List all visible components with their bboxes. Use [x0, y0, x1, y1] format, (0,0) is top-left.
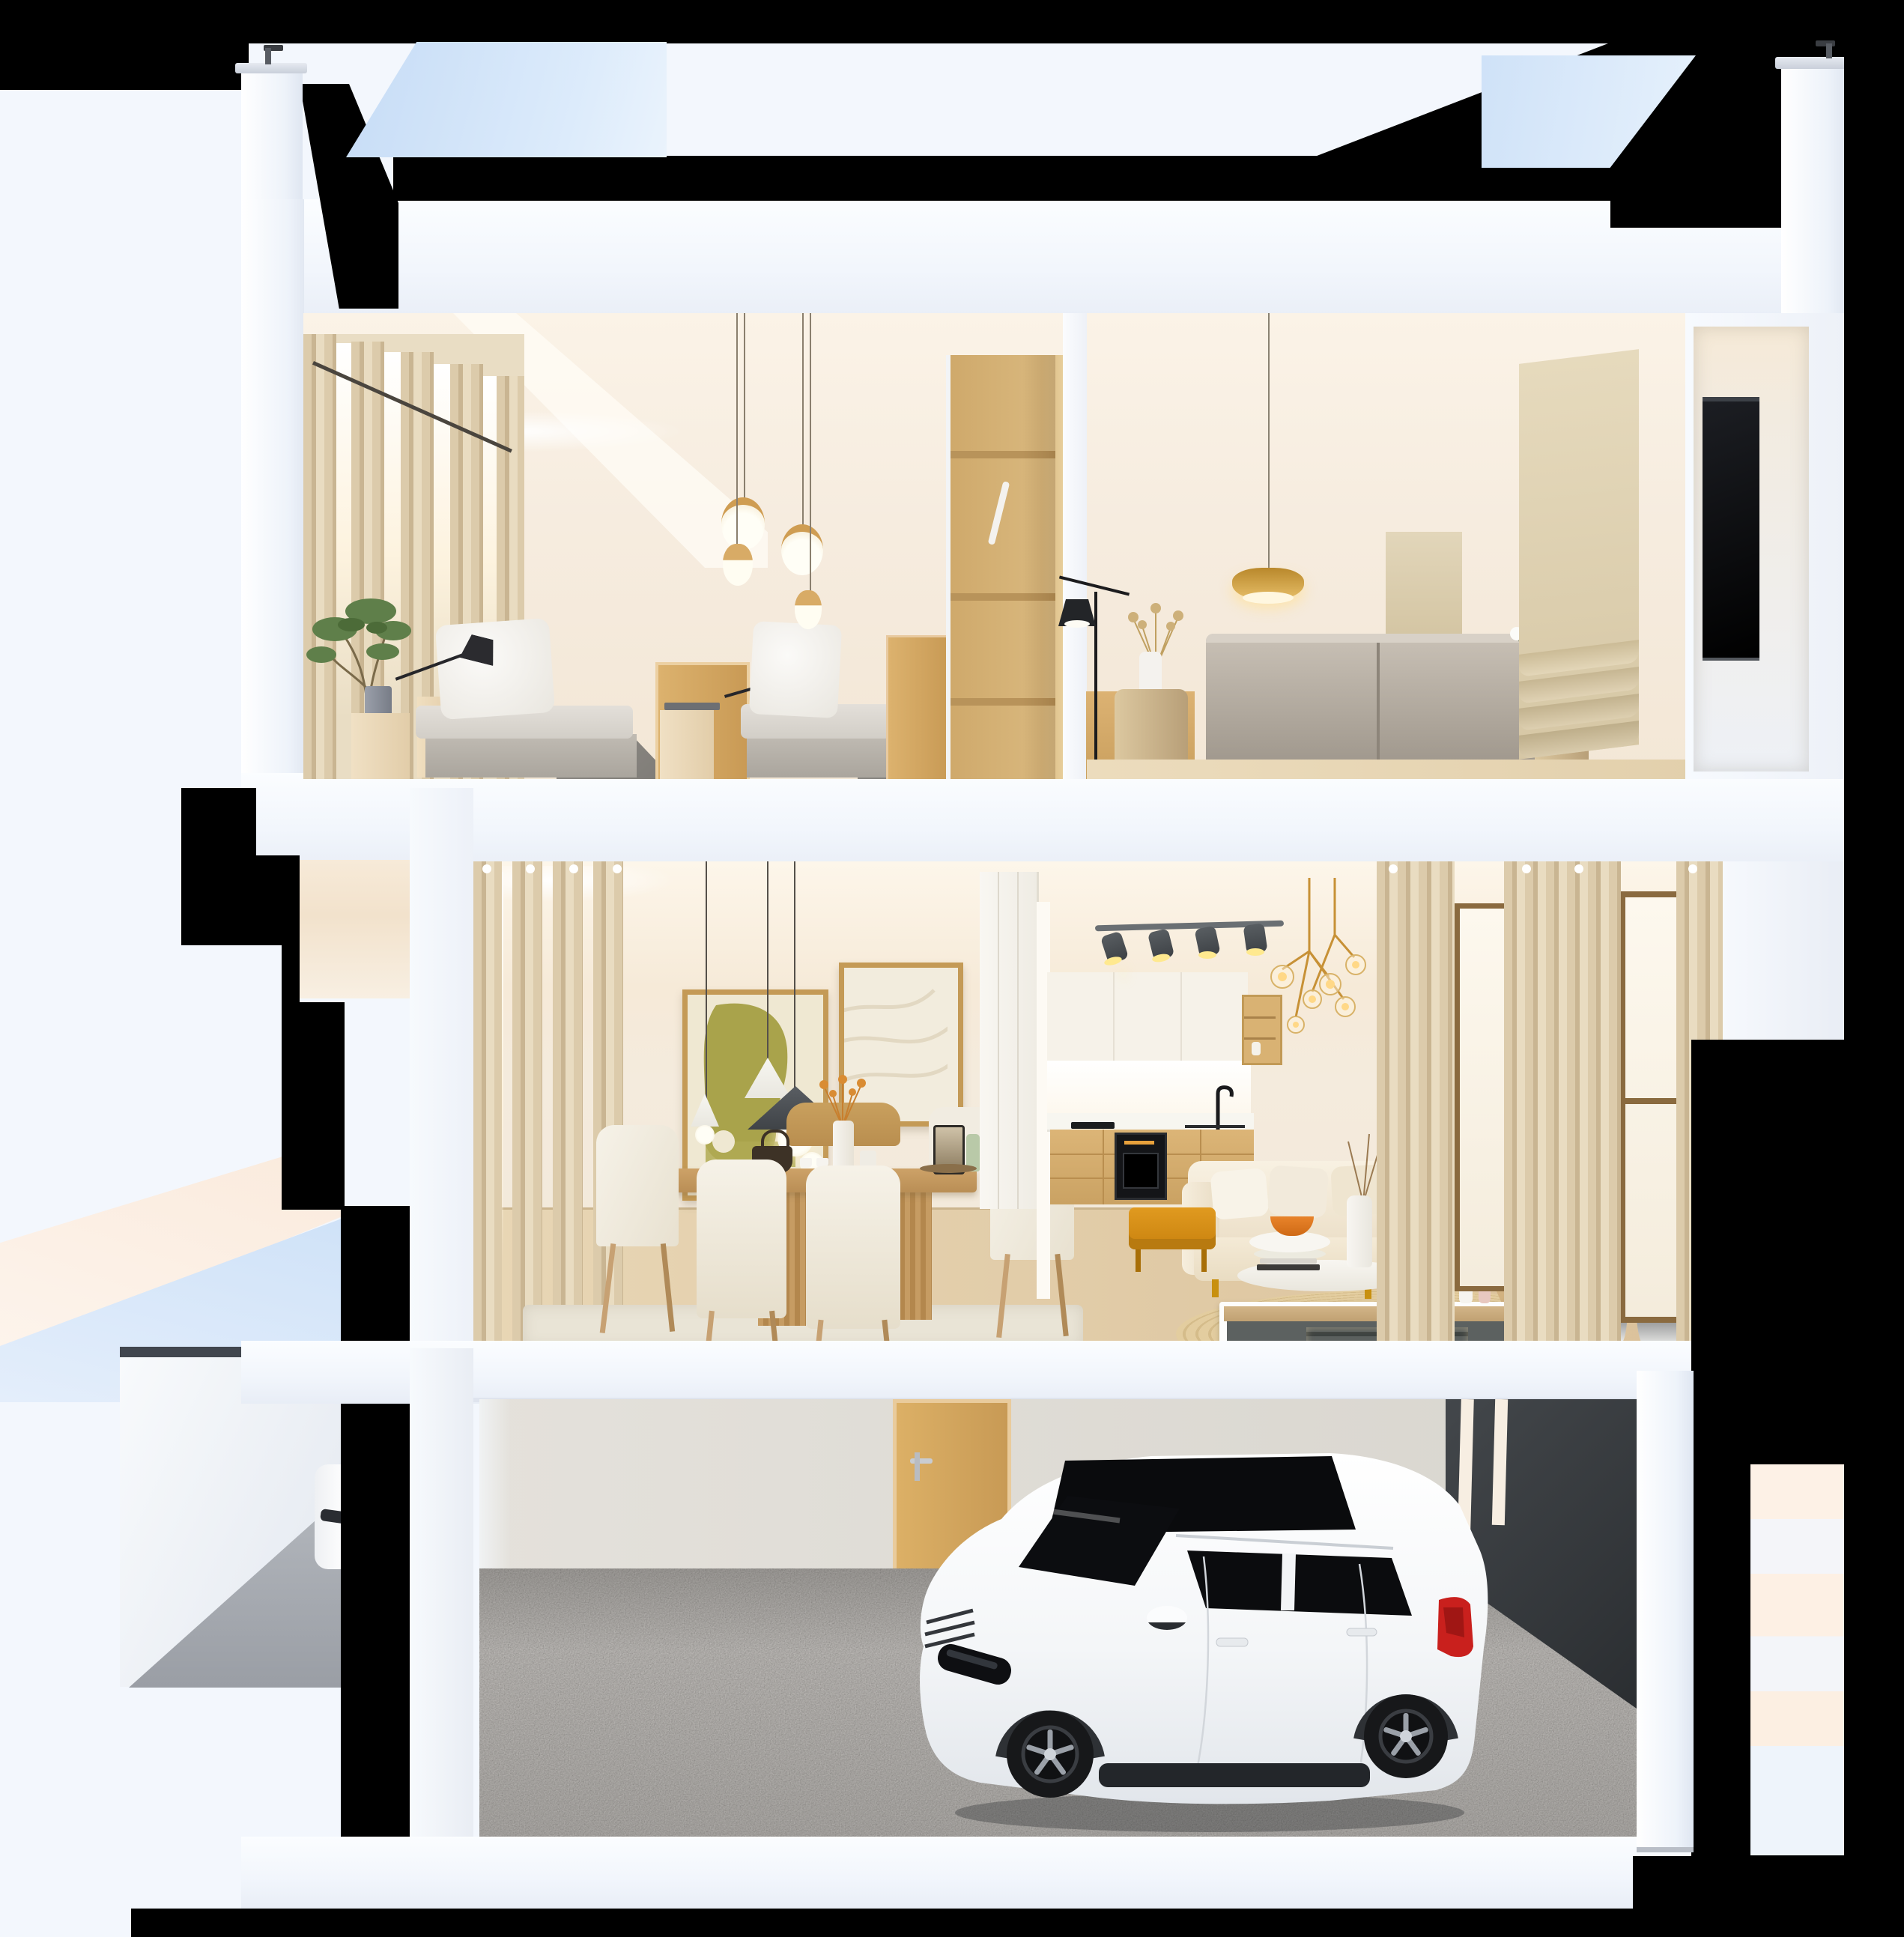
pendant-globe-glow	[695, 1125, 715, 1145]
kitchen-upper-cabinets	[1047, 972, 1248, 1063]
curtain-ring	[569, 864, 578, 873]
pendant-acorn	[723, 544, 753, 586]
ottoman-leg	[1136, 1249, 1141, 1272]
curtain-panel	[553, 861, 583, 1347]
hanger-rail	[988, 481, 1010, 545]
slab-top-middle	[241, 773, 1846, 875]
middle-floor	[473, 861, 1844, 1347]
niche-tv-panel	[1703, 397, 1759, 661]
track-spotlight-lens	[1246, 948, 1264, 956]
garage-pier-base-shadow	[1637, 1847, 1694, 1852]
gray-sofa-top-rim	[1206, 634, 1535, 643]
pendant-cord	[810, 313, 811, 592]
shelf-vase	[1252, 1042, 1261, 1055]
sky-reflection-left	[346, 42, 667, 157]
curtain-panel	[512, 861, 542, 1347]
bed2-pillow	[749, 621, 842, 718]
parapet-column-right	[1781, 69, 1847, 327]
left-mid-wall-strip	[410, 788, 473, 1351]
open-wardrobe	[946, 355, 1064, 779]
coffee-table-books	[1260, 1258, 1317, 1264]
curtain-ring	[1389, 864, 1398, 873]
curtain-ring	[526, 864, 535, 873]
oven-window	[1123, 1153, 1159, 1189]
oven-display	[1124, 1141, 1154, 1145]
garage-front-slab	[241, 1837, 1694, 1912]
curtain-panel	[473, 861, 502, 1347]
curtain-ring	[613, 864, 622, 873]
parapet-column-left-cap	[235, 63, 307, 73]
sofa-leg-mustard	[1212, 1279, 1219, 1297]
built-in-oven	[1115, 1133, 1167, 1200]
white-suv	[910, 1422, 1509, 1834]
right-warm-wall-strip	[1750, 1464, 1846, 1855]
pendant-cord	[744, 313, 745, 499]
pendant-cord	[736, 313, 738, 545]
kitchen-sink-line	[1185, 1125, 1245, 1128]
pedestal-books	[664, 703, 720, 710]
kitchen-faucet	[1210, 1083, 1237, 1130]
bed-pillow	[435, 618, 555, 720]
parapet-right-finial-stem	[1826, 43, 1832, 58]
floor-lamp-bulb	[1064, 620, 1090, 628]
oak-wardrobe-door	[886, 635, 951, 779]
bottle-vase	[1347, 1195, 1372, 1267]
closet-seam	[998, 872, 999, 1209]
car-b-pillar	[1281, 1553, 1296, 1610]
curtain-ring	[1522, 864, 1531, 873]
curtain-group	[1377, 861, 1455, 1347]
garage	[479, 1399, 1693, 1841]
curtain-ring	[1574, 864, 1583, 873]
right-edge-black	[1844, 0, 1904, 1859]
garage-pier	[1637, 1371, 1694, 1852]
car-front-wheel	[1007, 1711, 1094, 1798]
parapet-left-finial-stem	[265, 48, 271, 64]
dried-flowers	[809, 1073, 876, 1127]
bottom-right-black	[1633, 1856, 1904, 1937]
closet-panel	[980, 872, 1039, 1209]
roman-shade-back	[1386, 532, 1462, 650]
cabinet-seam	[1180, 972, 1182, 1061]
gray-sofa	[1206, 634, 1535, 779]
roof-slab	[241, 199, 1846, 327]
lounge-pendant-cord	[1268, 313, 1270, 572]
coffee-table-books	[1257, 1264, 1320, 1270]
cabinet-seam	[1103, 1130, 1104, 1204]
room-divider-wall	[1063, 313, 1087, 779]
garage-left-outer-wall	[410, 1348, 473, 1843]
pendant-acorn	[795, 590, 822, 629]
pendant-cord	[706, 861, 707, 1100]
plant-pedestal	[351, 713, 410, 779]
parapet-right-finial	[1816, 40, 1835, 46]
bed2-base	[747, 734, 894, 777]
slab-middle-garage	[241, 1341, 1846, 1404]
curtain-group	[1504, 861, 1621, 1347]
curtain-ring	[1688, 864, 1697, 873]
car-door-handle	[1347, 1628, 1377, 1636]
house-cutaway-scene	[0, 0, 1904, 1937]
curtain-ring	[482, 864, 491, 873]
dining-curtain-wall	[473, 861, 628, 1347]
pendant-globe	[721, 497, 765, 550]
track-spotlight-lens	[1198, 951, 1216, 959]
car-rear-wheel	[1364, 1694, 1448, 1778]
cooktop	[1071, 1122, 1115, 1129]
dining-chair-left	[596, 1125, 679, 1246]
bed-base	[425, 734, 637, 777]
bedside-pedestal	[660, 710, 714, 779]
teacup	[800, 1158, 812, 1168]
wardrobe-side-shade	[1022, 355, 1055, 779]
pendant-cord	[794, 861, 795, 1092]
left-outer-wall	[241, 199, 304, 783]
bouquet-vase	[1139, 652, 1162, 694]
dining-chair-near	[806, 1165, 900, 1329]
roof-left-block	[0, 0, 249, 90]
ground-shadow-bar	[131, 1909, 1741, 1937]
floor-lamp-pole	[1094, 592, 1097, 779]
parapet-column-right-cap	[1775, 57, 1852, 69]
gray-sofa-seam	[1377, 638, 1380, 779]
potted-tree	[303, 583, 419, 718]
roof-top-bar	[0, 0, 1904, 43]
pendant-cord	[767, 861, 768, 1062]
teapot-handle	[761, 1130, 789, 1151]
brass-chandelier	[1266, 878, 1371, 1054]
left-cut-shadow	[181, 785, 410, 1892]
brass-pendant-glow	[1243, 592, 1294, 604]
ottoman-leg	[1201, 1249, 1207, 1272]
top-floor	[303, 313, 1844, 779]
sofa-pillow	[1267, 1165, 1329, 1218]
roman-shade-right	[1519, 349, 1639, 760]
closet-seam	[1017, 872, 1019, 1209]
dining-chair-near	[697, 1160, 786, 1318]
sofa-pillow	[1210, 1168, 1269, 1220]
car-side-glass	[1187, 1550, 1412, 1616]
car-rocker	[1099, 1763, 1370, 1787]
wood-tray	[920, 1164, 977, 1173]
cabinet-seam	[1113, 972, 1115, 1061]
pendant-globe	[781, 524, 823, 575]
flower-vase	[833, 1121, 854, 1171]
pendant-cord	[802, 313, 804, 526]
car-door-handle	[1216, 1638, 1248, 1646]
ottoman-bench	[1129, 1207, 1216, 1249]
